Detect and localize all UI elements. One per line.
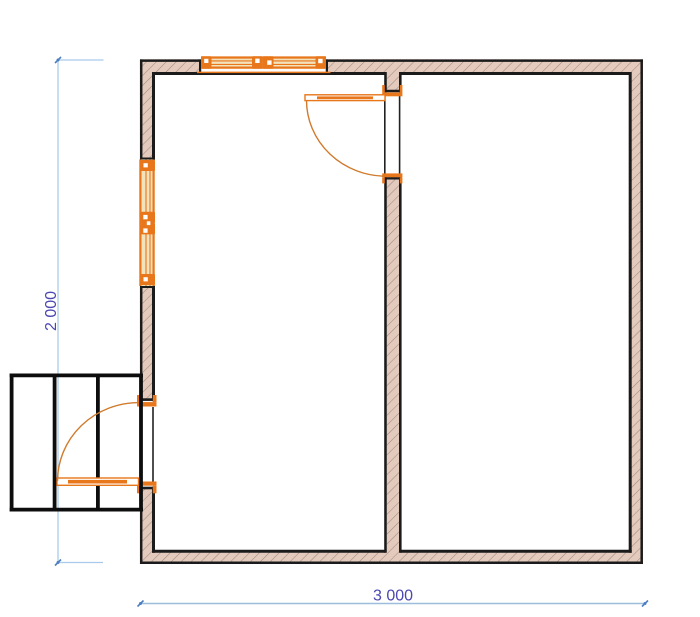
svg-text:3 000: 3 000 <box>373 588 413 605</box>
svg-text:2 000: 2 000 <box>43 291 60 331</box>
